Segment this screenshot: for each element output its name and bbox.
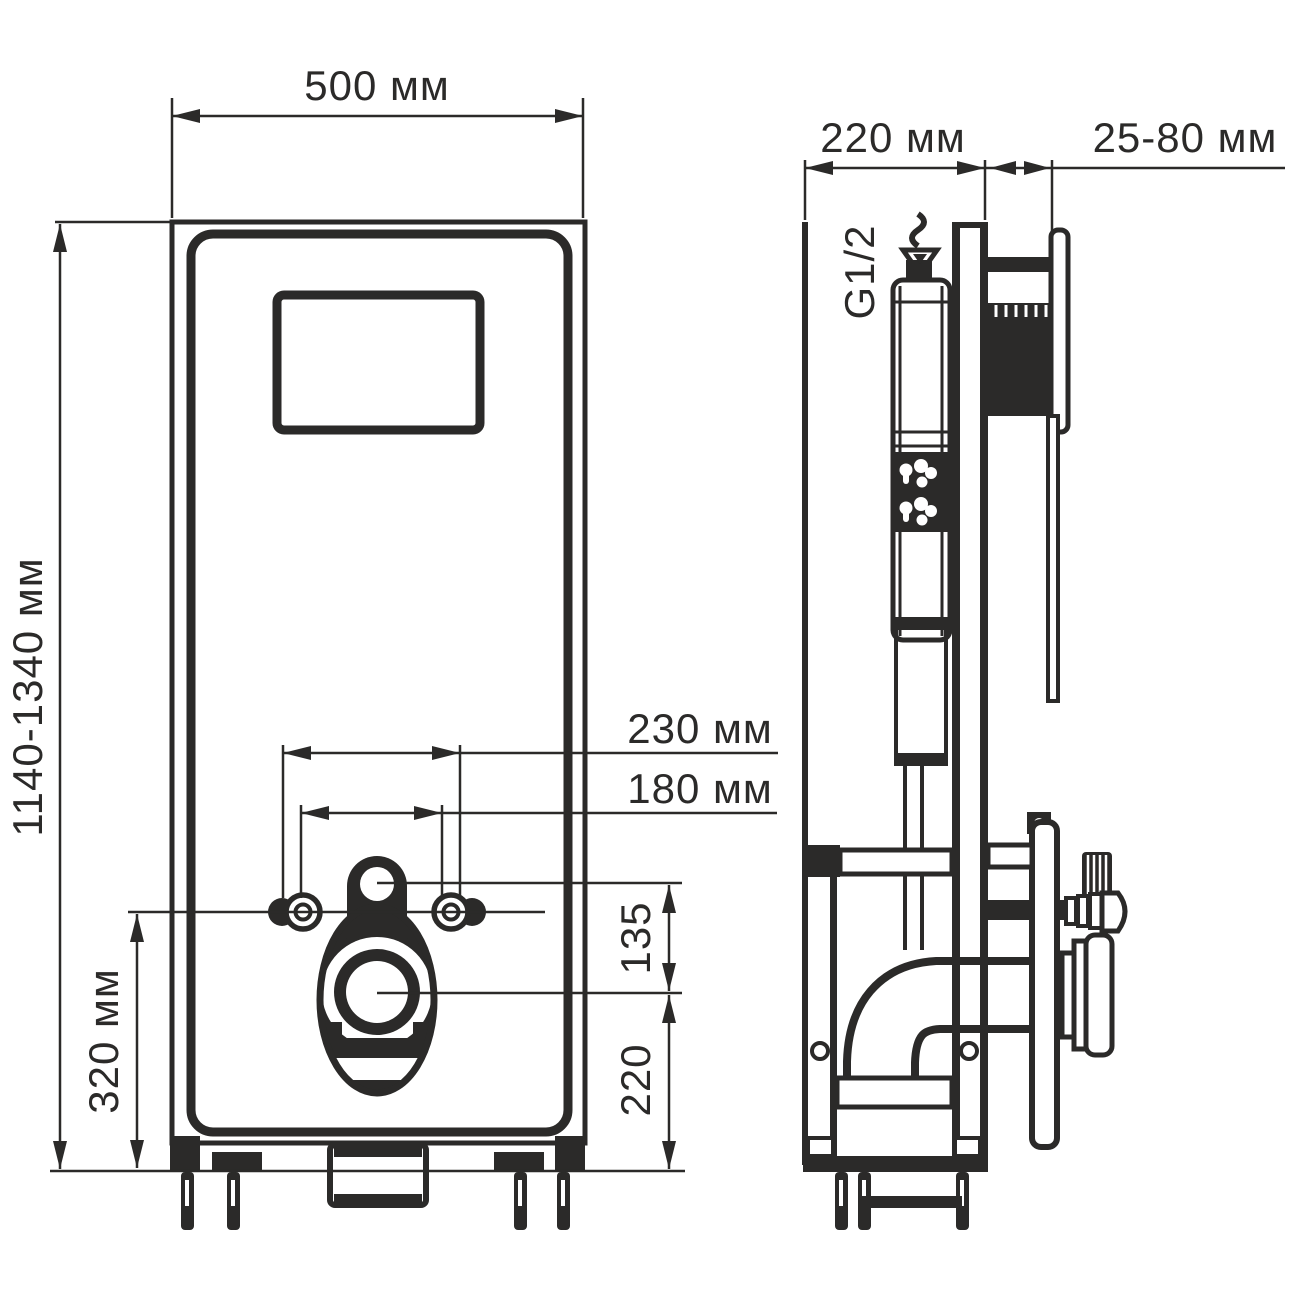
side-front-panel-edge (802, 222, 808, 1165)
frame-rail-front (952, 222, 960, 1165)
dim-label-side-depth: 220 мм (820, 114, 966, 161)
valve-cone (1102, 893, 1125, 931)
dim-label-flush-offset: 135 (612, 901, 659, 974)
dim-label-anchor-height: 320 мм (80, 968, 127, 1114)
dim-label-outlet-height: 220 (612, 1043, 659, 1116)
upper-cross-bracket (840, 850, 952, 874)
installation-technical-drawing: 500 мм 1140-1340 мм 230 мм 180 мм (0, 0, 1300, 1300)
dim-label-anchor-inner: 180 мм (627, 765, 773, 812)
actuator-duct (988, 303, 1051, 416)
leg-connector (988, 845, 1032, 867)
dim-label-anchor-outer: 230 мм (627, 705, 773, 752)
wall-flange-plate (1051, 230, 1068, 432)
side-base (803, 1138, 988, 1230)
waste-outlet-assembly (320, 856, 434, 1093)
flush-plate-window (277, 295, 480, 430)
dim-label-wall-clearance: 25-80 мм (1093, 114, 1278, 161)
top-wall-bracket (988, 257, 1050, 272)
front-view (170, 222, 585, 1230)
dim-label-front-width: 500 мм (304, 62, 450, 109)
side-front-leg (830, 847, 837, 1165)
dim-front-width: 500 мм (172, 62, 583, 218)
frame-rail-back (980, 222, 988, 1165)
side-view (802, 214, 1125, 1230)
dim-label-front-height: 1140-1340 мм (4, 557, 51, 836)
wall-rail (1048, 416, 1058, 701)
cistern (893, 260, 950, 950)
dim-wall-clearance: 25-80 мм (985, 114, 1285, 232)
lower-cross-bracket (837, 1078, 952, 1107)
dim-side-depth: 220 мм (805, 114, 985, 220)
waste-wall-bell (1062, 935, 1112, 1055)
label-water-thread: G1/2 (836, 224, 883, 319)
front-base (170, 1136, 585, 1230)
